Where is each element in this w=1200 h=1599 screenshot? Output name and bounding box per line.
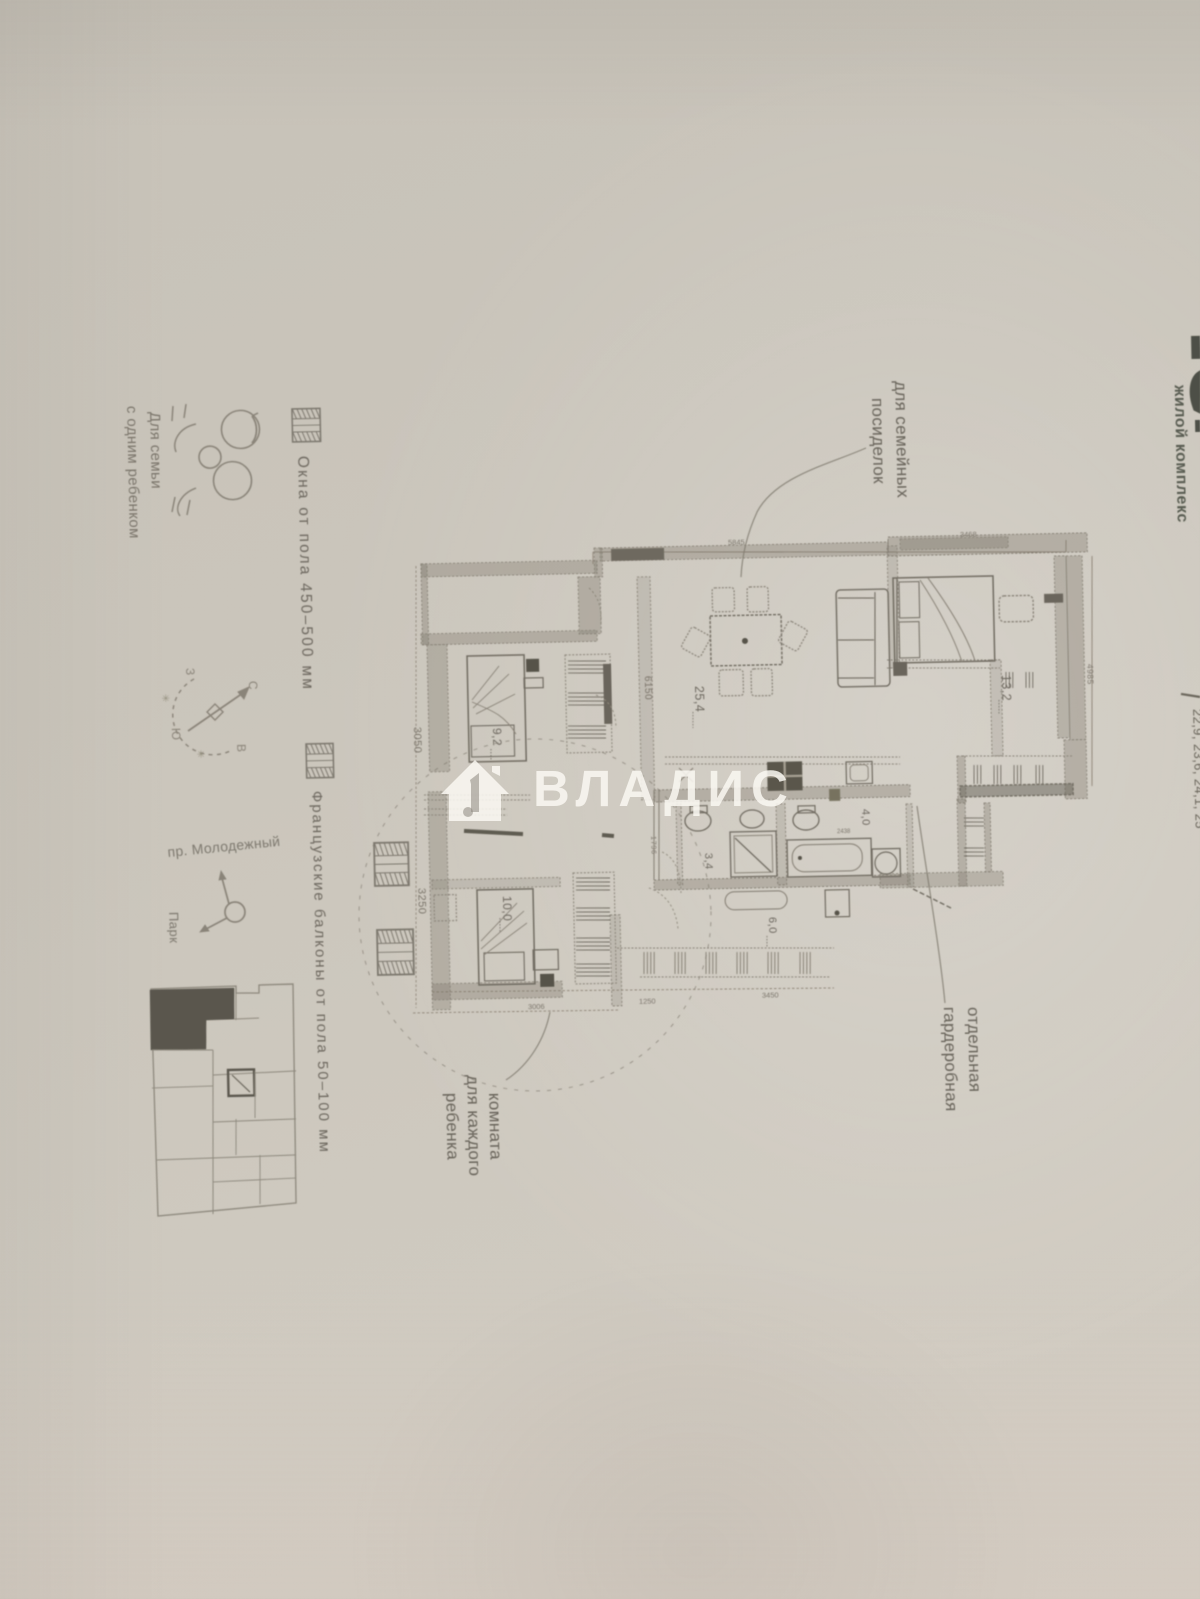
svg-text:комната: комната bbox=[485, 1093, 505, 1161]
svg-text:пр. Молодежный: пр. Молодежный bbox=[167, 833, 281, 860]
svg-text:3050: 3050 bbox=[411, 727, 424, 754]
svg-text:В: В bbox=[234, 744, 248, 753]
svg-text:гардеробная: гардеробная bbox=[940, 1007, 961, 1112]
svg-text:Окна от пола 450–500 мм: Окна от пола 450–500 мм bbox=[294, 456, 316, 692]
svg-text:3250: 3250 bbox=[415, 888, 428, 915]
svg-text:с одним ребенком: с одним ребенком bbox=[123, 406, 143, 539]
svg-text:25,4: 25,4 bbox=[692, 686, 707, 713]
svg-text:С: С bbox=[246, 681, 260, 690]
svg-text:жилой комплекс: жилой комплекс bbox=[1171, 384, 1191, 523]
svg-text:ВЛАДИС: ВЛАДИС bbox=[533, 760, 795, 817]
svg-text:9,2: 9,2 bbox=[490, 728, 504, 746]
svg-text:Ю: Ю bbox=[169, 728, 183, 741]
svg-text:4985: 4985 bbox=[1085, 664, 1095, 685]
svg-text:посиделок: посиделок bbox=[868, 398, 889, 485]
svg-text:З: З bbox=[183, 668, 197, 676]
svg-text:Французские балконы от пола 50: Французские балконы от пола 50–100 мм bbox=[308, 791, 333, 1154]
svg-text:3450: 3450 bbox=[762, 991, 779, 1000]
svg-text:3006: 3006 bbox=[528, 1002, 545, 1011]
svg-text:✳: ✳ bbox=[194, 750, 205, 759]
svg-text:для каждого: для каждого bbox=[463, 1075, 484, 1177]
svg-text:2438: 2438 bbox=[837, 829, 851, 835]
svg-text:13,2: 13,2 bbox=[999, 675, 1014, 702]
svg-text:1250: 1250 bbox=[639, 997, 656, 1006]
svg-text:4,0: 4,0 bbox=[859, 809, 871, 826]
svg-text:Парк: Парк bbox=[166, 912, 182, 944]
svg-text:✳: ✳ bbox=[159, 694, 170, 703]
svg-text:отдельная: отдельная bbox=[964, 1007, 985, 1093]
svg-text:3,4: 3,4 bbox=[702, 853, 714, 870]
svg-text:22,9, 23,6, 24,1, 25: 22,9, 23,6, 24,1, 25 bbox=[1190, 709, 1200, 829]
svg-text:Для семьи: Для семьи bbox=[146, 412, 165, 489]
svg-text:для семейных: для семейных bbox=[891, 381, 912, 499]
svg-text:6,0: 6,0 bbox=[766, 917, 778, 934]
svg-text:10,0: 10,0 bbox=[500, 896, 515, 922]
svg-text:ребенка: ребенка bbox=[442, 1093, 462, 1161]
